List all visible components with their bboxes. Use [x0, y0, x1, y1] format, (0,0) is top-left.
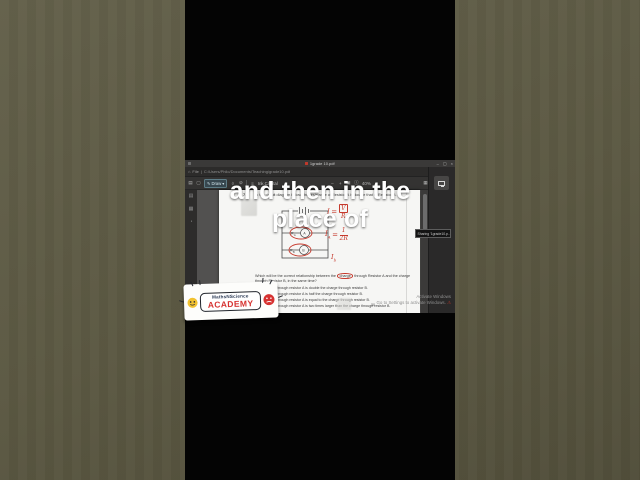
file-path-bar: ⌂ File | C:/Users/Philo/Documents/Teachi…: [185, 167, 455, 177]
academy-label: ACADEMY: [203, 298, 258, 310]
page-number: 30: [371, 303, 375, 307]
window-titlebar: 1grade 10.pdf – ▢ ×: [185, 160, 455, 167]
app-icon: [188, 162, 191, 165]
window-title: 1grade 10.pdf: [310, 161, 335, 166]
video-letterbox-strip: 1grade 10.pdf – ▢ × ⌂ File | C:/Users/Ph…: [185, 0, 455, 480]
angry-emoji-icon: [263, 293, 275, 305]
file-path: C:/Users/Philo/Documents/Teaching/grade1…: [204, 169, 291, 174]
burst-line: [179, 300, 184, 303]
caption-line-2: place of: [185, 205, 455, 233]
minimize-button[interactable]: –: [437, 161, 439, 166]
pdf-file-icon: [305, 162, 308, 165]
red-circled-word: charge: [337, 273, 353, 279]
faded-stamp: [337, 298, 351, 310]
video-caption: and then in the place of: [185, 177, 455, 233]
smiley-emoji-icon: [187, 297, 198, 308]
svg-text:B: B: [293, 251, 295, 254]
logo-bubble: MathsNScience ACADEMY: [200, 290, 262, 311]
activate-windows-watermark: Activate Windows Go to Settings to activ…: [377, 294, 451, 306]
caption-line-1: and then in the: [185, 177, 455, 205]
file-menu[interactable]: File: [192, 169, 198, 174]
close-button[interactable]: ×: [451, 161, 453, 166]
svg-text:A: A: [294, 234, 296, 237]
path-separator: |: [201, 169, 202, 174]
home-icon[interactable]: ⌂: [188, 169, 190, 174]
warning-icon: ⚠: [447, 300, 451, 305]
maximize-button[interactable]: ▢: [443, 161, 447, 166]
burst-line: [262, 278, 264, 283]
handwritten-equation-3: Ib: [331, 253, 336, 262]
question-text: Which will be the correct relationship b…: [255, 274, 413, 284]
channel-logo: MathsNScience ACADEMY: [183, 281, 278, 320]
